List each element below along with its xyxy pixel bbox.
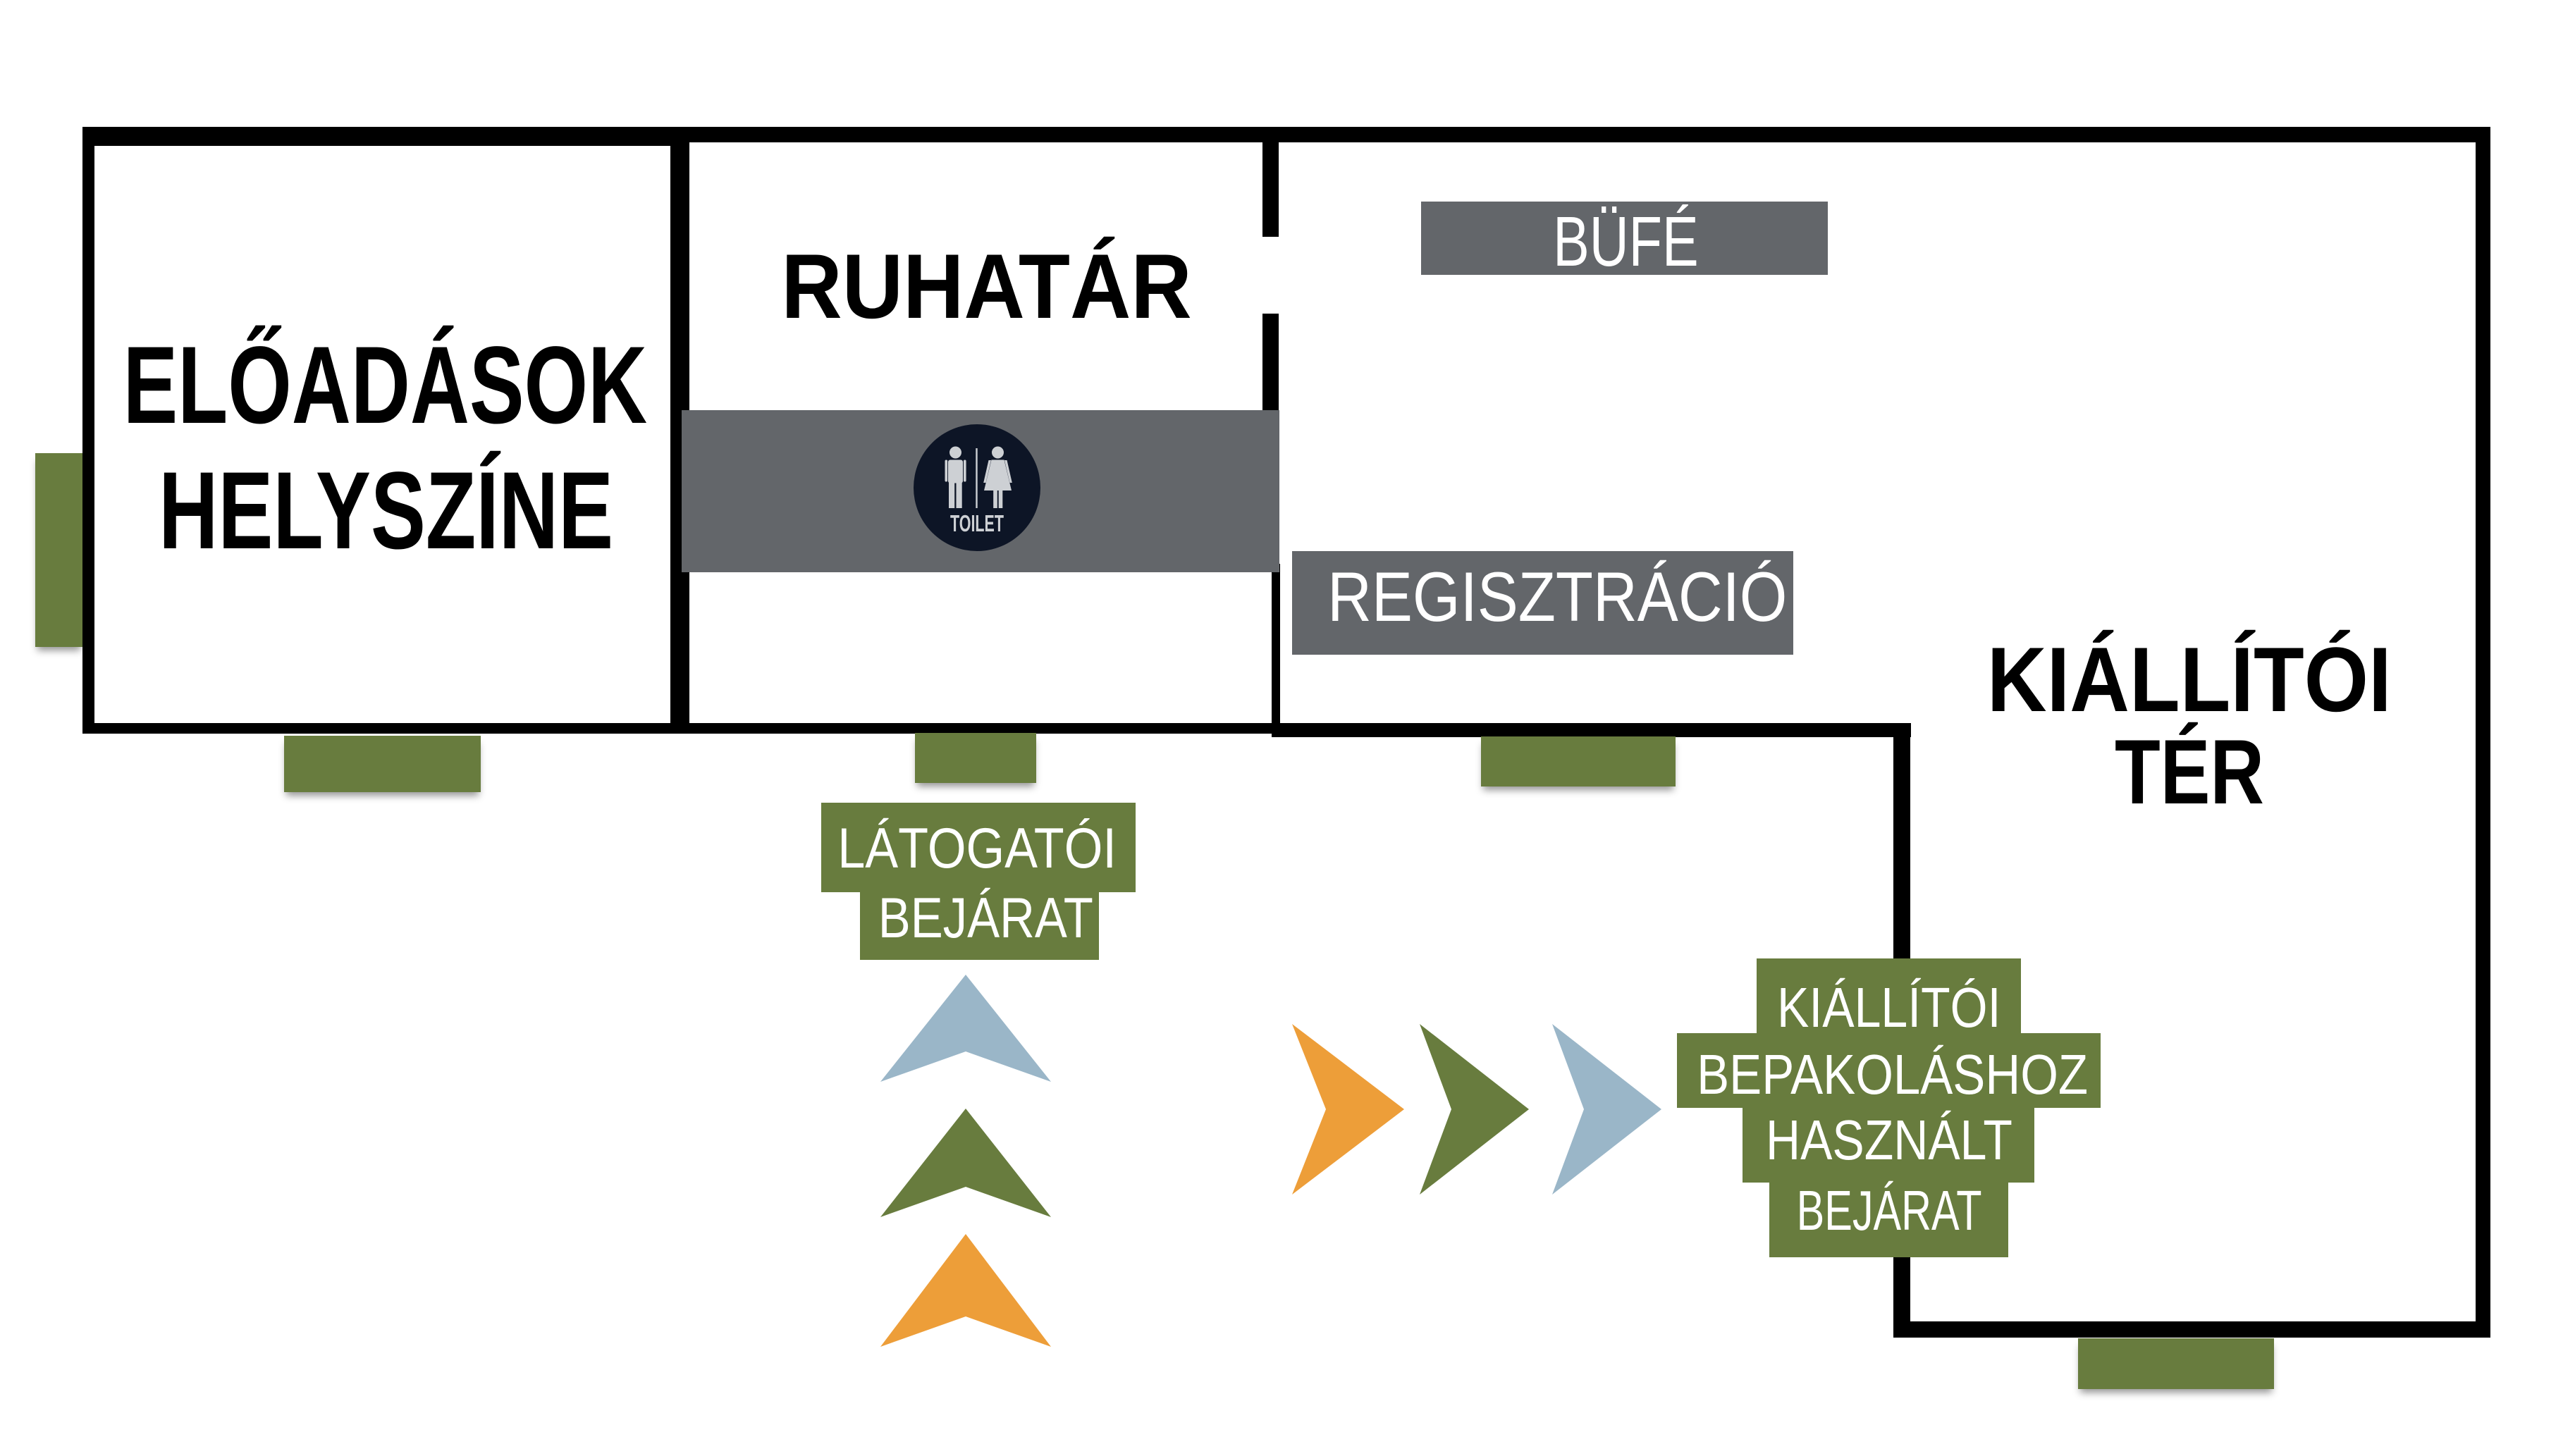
svg-text:TOILET: TOILET [950,510,1004,536]
